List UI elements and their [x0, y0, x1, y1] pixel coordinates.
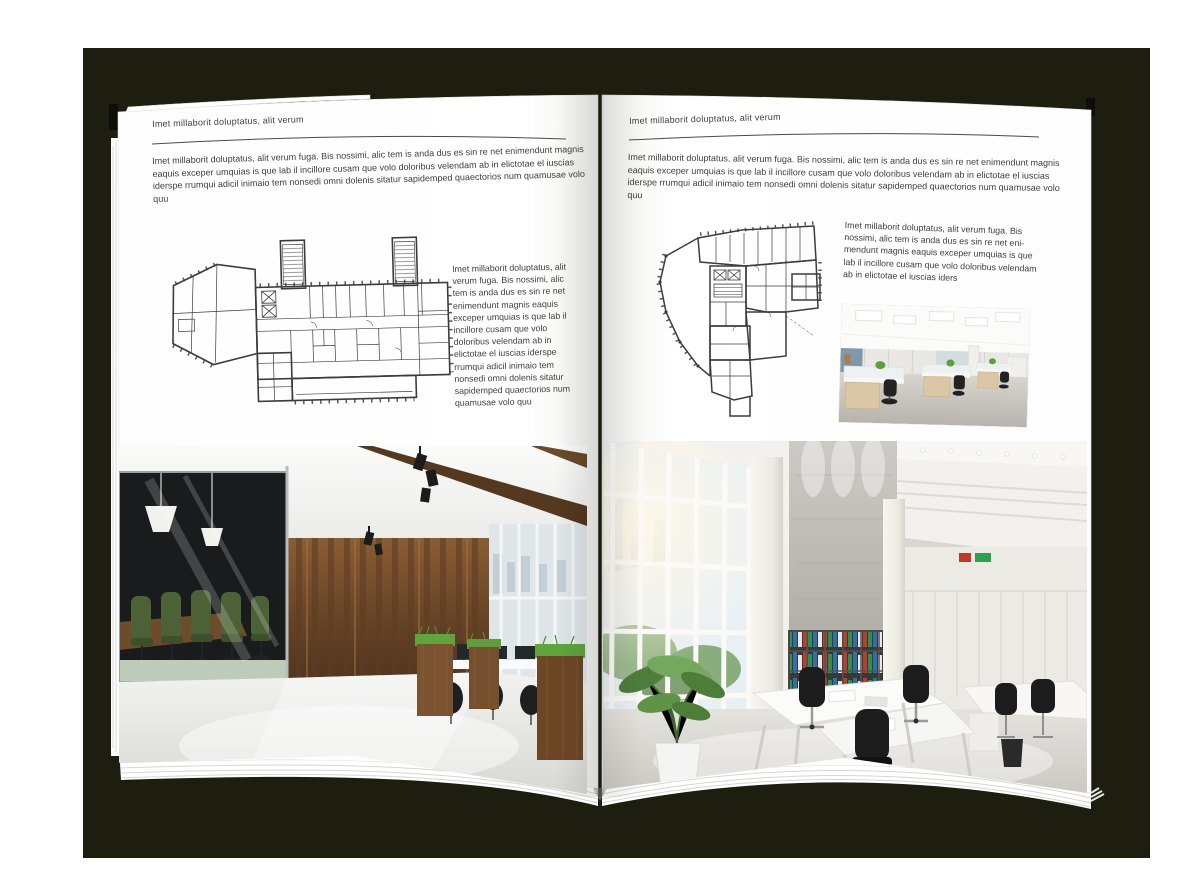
left-side-text: Imet millaborit doluptatus, alit verum f… [452, 260, 581, 409]
right-side-text: Imet millaborit doluptatus, alit verum f… [843, 219, 1047, 287]
floor-plan-right-illustration [646, 216, 842, 420]
office-photo-left [119, 446, 587, 794]
office-photo-right [603, 441, 1087, 793]
cover-notch-left [109, 104, 118, 130]
right-header-rule [627, 128, 1041, 144]
floor-plan-left-illustration [158, 222, 455, 416]
magazine-mockup-scene: Imet millaborit doluptatus, alit verum I… [0, 0, 1200, 891]
right-intro-paragraph: Imet millaborit doluptatus, alit verum f… [627, 151, 1068, 207]
page-stack-left [111, 138, 119, 756]
office-photo-small [839, 304, 1030, 427]
